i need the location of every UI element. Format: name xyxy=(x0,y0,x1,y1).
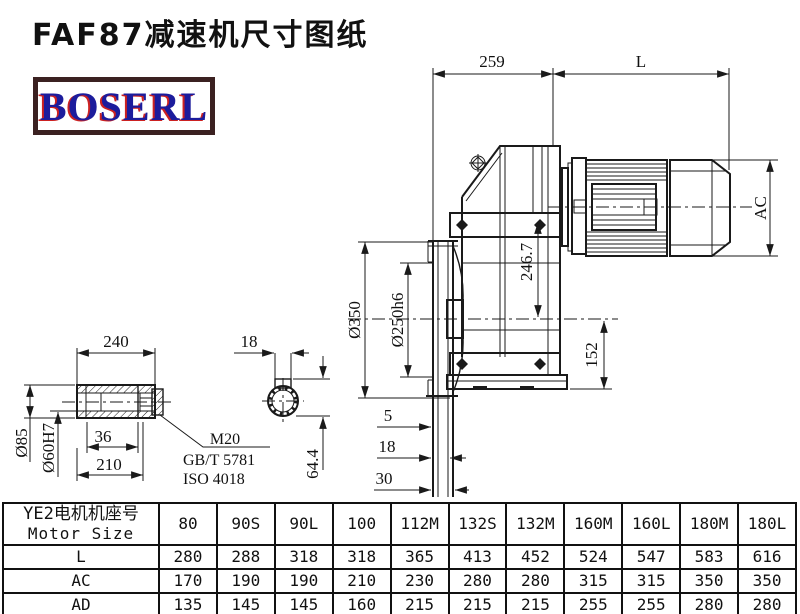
dim-85: Ø85 xyxy=(12,428,31,457)
col-header: 132M xyxy=(506,503,564,545)
bolt-hole-icon xyxy=(469,154,487,172)
row-label: AD xyxy=(3,593,159,614)
row-label: AC xyxy=(3,569,159,593)
dim-250h6: Ø250h6 xyxy=(388,293,407,348)
col-header: 80 xyxy=(159,503,217,545)
dim-152: 152 xyxy=(582,342,601,368)
col-header: 90L xyxy=(275,503,333,545)
table-row-AC: AC 170 190 190 210 230 280 280 315 315 3… xyxy=(3,569,796,593)
motor xyxy=(548,158,752,256)
shaft-detail: 240 Ø85 Ø60H7 36 210 M20 GB/T 578 xyxy=(12,332,270,488)
col-header: 90S xyxy=(217,503,275,545)
dim-64-4: 64.4 xyxy=(303,449,322,479)
table-row-L: L 280 288 318 318 365 413 452 524 547 58… xyxy=(3,545,796,569)
dim-350: Ø350 xyxy=(345,301,364,339)
dim-240: 240 xyxy=(103,332,129,351)
col-header: 100 xyxy=(333,503,391,545)
label-iso4018: ISO 4018 xyxy=(183,471,245,488)
col-header: 180L xyxy=(738,503,796,545)
gearbox-housing xyxy=(447,146,567,389)
dim-246-7: 246.7 xyxy=(517,242,536,281)
dim-AC: AC xyxy=(751,196,770,220)
technical-drawing: 259 L AC xyxy=(0,0,800,500)
col-header: 160L xyxy=(622,503,680,545)
col-header: 132S xyxy=(449,503,507,545)
dim-36: 36 xyxy=(95,427,112,446)
dim-18-flange: 18 xyxy=(379,437,396,456)
output-flange xyxy=(426,241,463,497)
motor-size-table: YE2电机机座号 Motor Size 80 90S 90L 100 112M … xyxy=(2,502,797,614)
table-header-row: YE2电机机座号 Motor Size 80 90S 90L 100 112M … xyxy=(3,503,796,545)
table-row-AD: AD 135 145 145 160 215 215 215 255 255 2… xyxy=(3,593,796,614)
dim-18-key: 18 xyxy=(241,332,258,351)
row-label: L xyxy=(3,545,159,569)
label-m20: M20 xyxy=(210,431,240,448)
col-header: 160M xyxy=(564,503,622,545)
col-header: 112M xyxy=(391,503,449,545)
dim-259: 259 xyxy=(479,52,505,71)
header-motor-size: YE2电机机座号 Motor Size xyxy=(3,503,159,545)
col-header: 180M xyxy=(680,503,738,545)
label-gbt5781: GB/T 5781 xyxy=(183,452,255,469)
dim-5: 5 xyxy=(384,406,393,425)
dim-30: 30 xyxy=(376,469,393,488)
dim-210: 210 xyxy=(96,455,122,474)
main-view: 259 L AC xyxy=(345,52,778,497)
drawing-sheet: FAF87减速机尺寸图纸 BOSERL 259 L xyxy=(0,0,800,614)
dim-L: L xyxy=(636,52,646,71)
dim-60h7: Ø60H7 xyxy=(39,422,58,473)
